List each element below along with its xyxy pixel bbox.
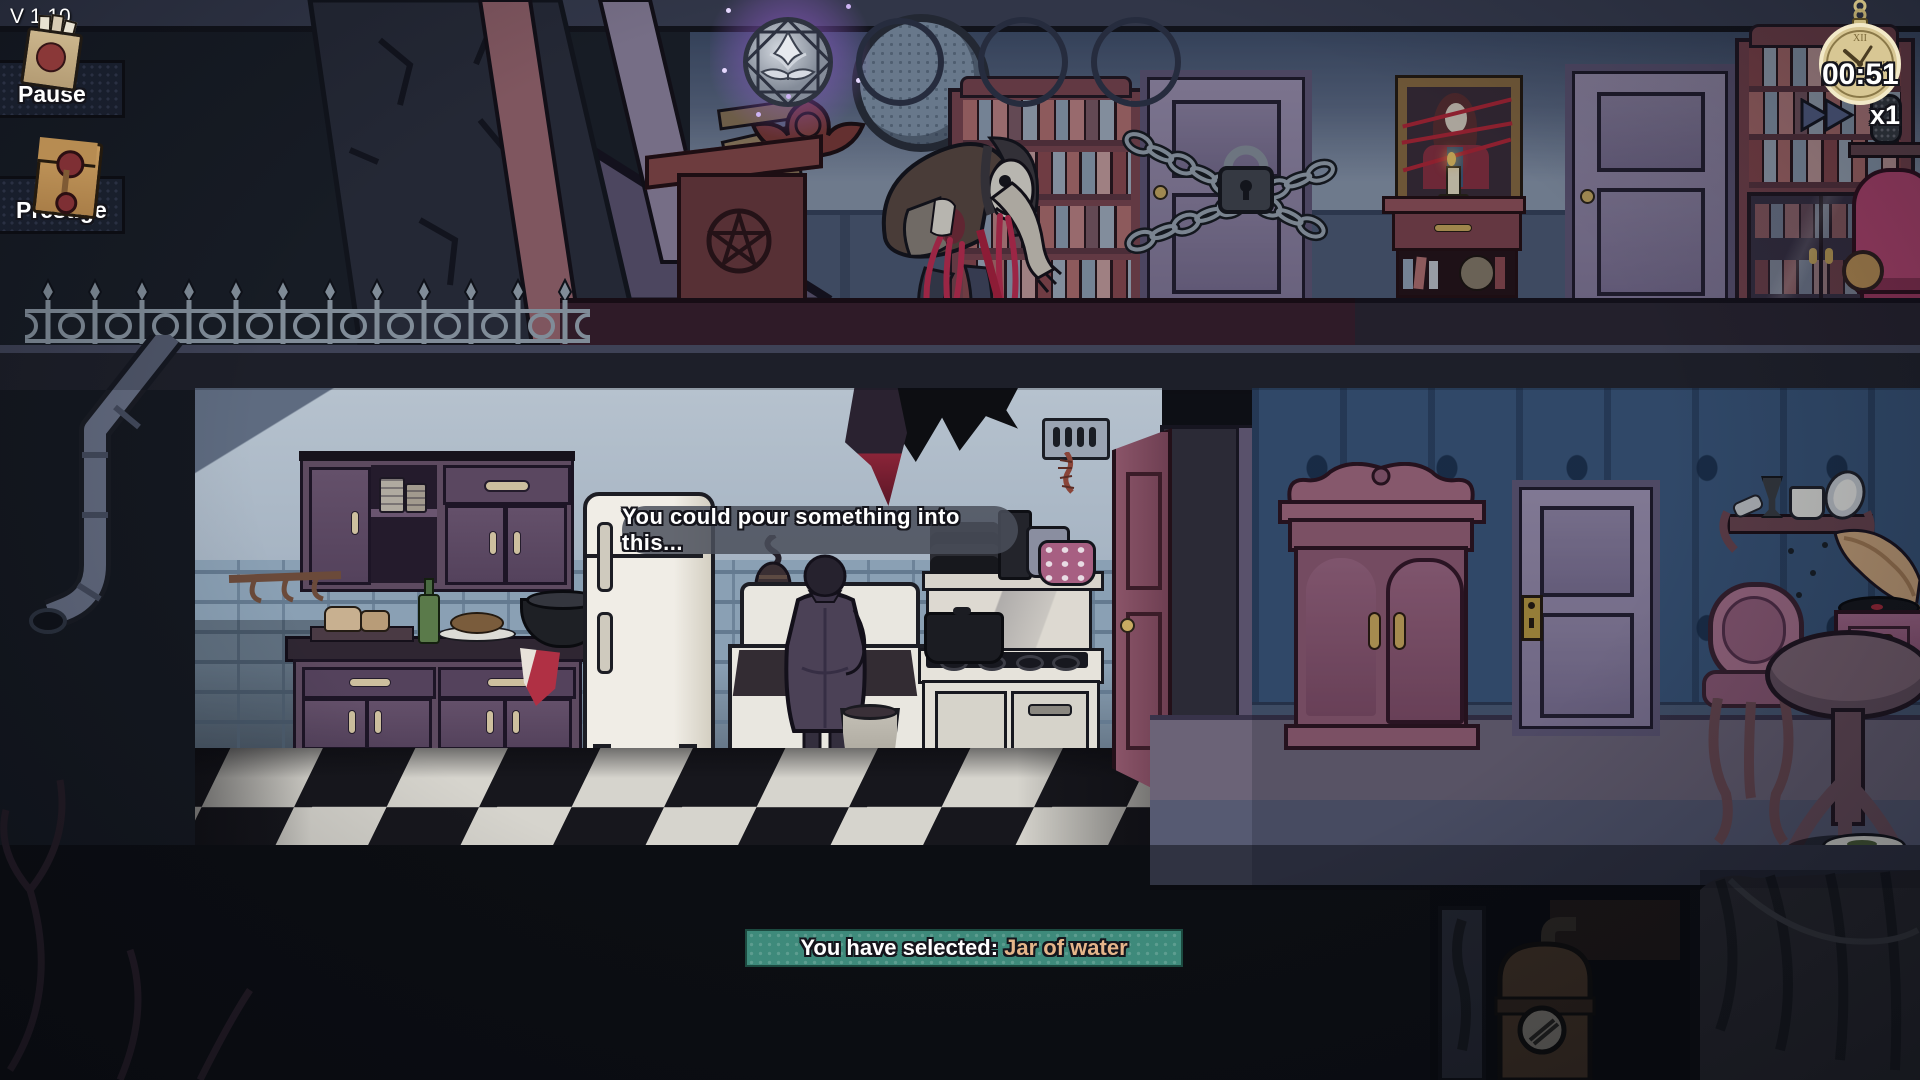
wardrobe[interactable] <box>1288 462 1474 752</box>
timer-value: 00:51 <box>1822 58 1899 92</box>
fast-forward-icon <box>1798 98 1862 132</box>
game-scene: You could pour something into this... V … <box>0 0 1920 1080</box>
altar-desk[interactable] <box>645 145 820 305</box>
empty-sigil-slot <box>1091 17 1181 107</box>
console-table[interactable] <box>1388 196 1520 302</box>
door-knob <box>1120 618 1135 633</box>
flies <box>1788 548 1794 554</box>
pentagram-carving <box>703 205 775 277</box>
dialogue-bubble: You could pour something into this... <box>622 506 1018 554</box>
selection-item: Jar of water <box>1004 935 1128 961</box>
speed-control[interactable]: x1 <box>1798 96 1918 136</box>
door-lock-plate <box>1521 595 1543 641</box>
plate-of-food[interactable] <box>438 612 512 640</box>
dialogue-text: You could pour something into this... <box>622 504 1018 556</box>
upper-hall-door[interactable] <box>1565 64 1735 316</box>
empty-sigil-slot <box>978 17 1068 107</box>
globe <box>1459 255 1495 291</box>
sigil-row <box>720 0 1200 130</box>
floor-divider <box>0 345 1920 394</box>
jar <box>405 483 427 513</box>
empty-sigil-slot <box>856 18 944 106</box>
flame-book-medallion[interactable] <box>740 14 836 110</box>
centipede <box>1052 452 1082 496</box>
green-bottle[interactable] <box>418 578 436 640</box>
candle[interactable] <box>1438 152 1464 202</box>
pot-with-lid <box>924 612 1004 664</box>
drainpipe <box>20 335 200 665</box>
door-knob <box>1580 189 1595 204</box>
speed-value: x1 <box>1870 100 1900 131</box>
parlor-door[interactable] <box>1512 480 1660 736</box>
svg-text:XII: XII <box>1853 33 1867 44</box>
inventory-bar <box>0 960 1920 1070</box>
upper-carpet <box>560 298 1360 351</box>
kitchen-checkered-floor <box>195 748 1162 848</box>
upper-floor-right <box>1355 298 1920 351</box>
cigarette-pack-icon <box>20 27 77 87</box>
jar <box>379 477 405 513</box>
polka-dot-kettle <box>1038 540 1096 586</box>
sealed-envelope-icon <box>32 137 101 217</box>
pocket-watch-icon: XII IX III <box>1810 0 1910 110</box>
open-shelf <box>371 465 437 583</box>
teacup-stack <box>1789 486 1825 520</box>
cutting-board-bread[interactable] <box>310 612 410 640</box>
selection-prefix: You have selected: <box>800 935 1004 961</box>
